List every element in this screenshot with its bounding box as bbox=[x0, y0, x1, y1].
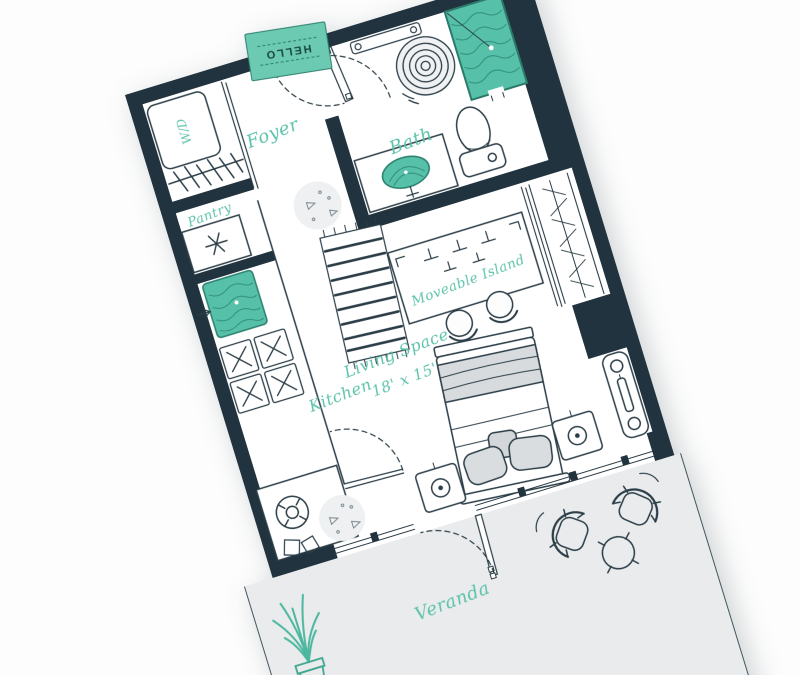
media-console bbox=[601, 350, 651, 440]
doormat-border: HELLO bbox=[258, 37, 320, 66]
floorplan: HELLO Foyer Bath Pantry Kitchen Moveable… bbox=[84, 0, 800, 675]
veranda-door bbox=[421, 514, 500, 595]
doormat-text: HELLO bbox=[264, 42, 313, 61]
spiral-rug bbox=[388, 30, 463, 107]
pillow-right bbox=[508, 434, 554, 471]
toilet bbox=[446, 101, 508, 178]
floorplan-page: HELLO Foyer Bath Pantry Kitchen Moveable… bbox=[0, 0, 800, 675]
potted-plant bbox=[268, 592, 341, 675]
stove-burners bbox=[219, 329, 304, 414]
closet bbox=[518, 168, 610, 311]
veranda-chair-left bbox=[529, 500, 593, 561]
veranda-table bbox=[598, 533, 638, 573]
kitchen-sink bbox=[190, 270, 268, 342]
foyer-round-rug bbox=[288, 176, 348, 236]
veranda-chair-right bbox=[609, 466, 671, 531]
shower bbox=[445, 0, 529, 107]
